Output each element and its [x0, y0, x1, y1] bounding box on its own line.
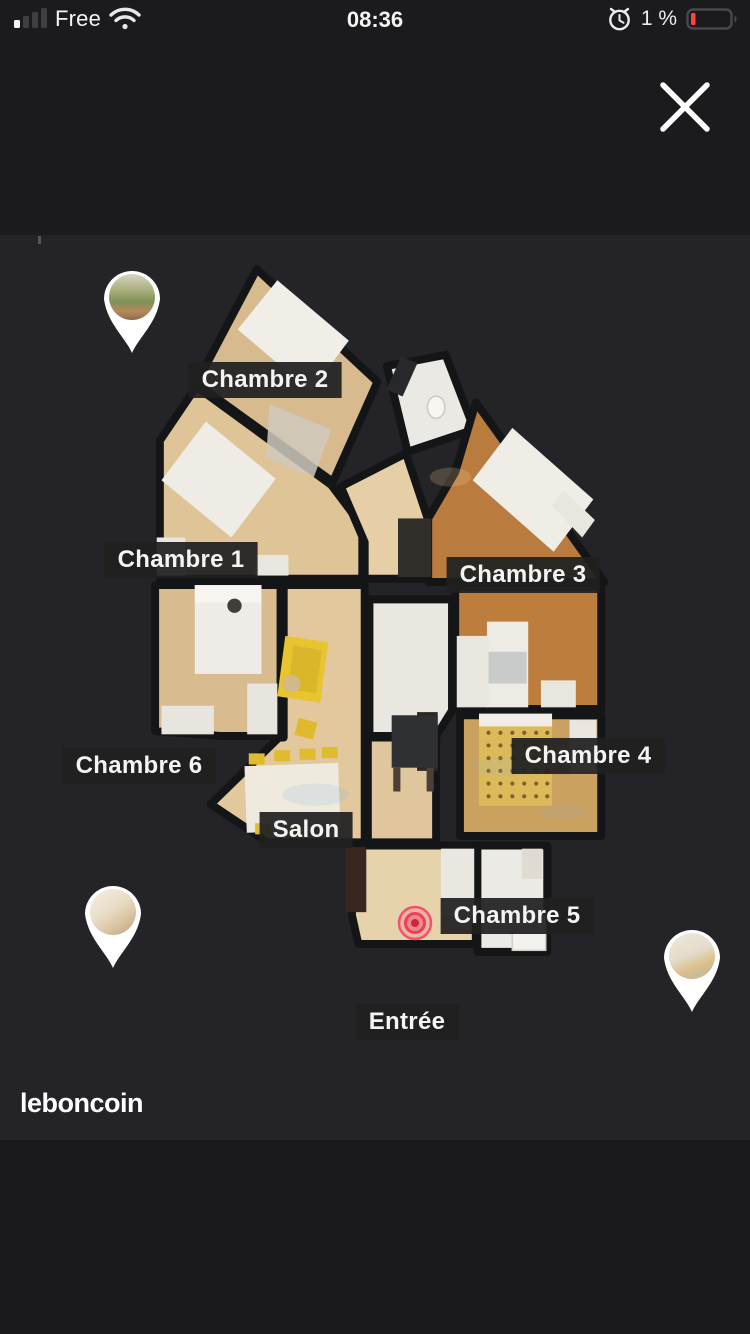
- alarm-icon: [607, 6, 632, 32]
- room-label-chambre-2: Chambre 2: [189, 362, 342, 398]
- phone-screen: Free 08:36 1 %: [0, 0, 750, 1334]
- photo-pin-hallway[interactable]: [77, 878, 149, 972]
- close-button[interactable]: [652, 74, 718, 140]
- room-label-salon: Salon: [260, 812, 353, 848]
- floorplan-viewer[interactable]: Chambre 2 Chambre 1 Chambre 3 Chambre 6 …: [0, 235, 750, 1140]
- brand-logo: leboncoin: [20, 1088, 143, 1119]
- status-bar: Free 08:36 1 %: [0, 0, 750, 44]
- room-label-chambre-1: Chambre 1: [105, 542, 258, 578]
- bottom-spacer: [0, 1140, 750, 1334]
- room-label-chambre-5: Chambre 5: [441, 898, 594, 934]
- photo-pin-bedroom[interactable]: [656, 922, 728, 1016]
- battery-percent-label: 1 %: [641, 7, 677, 31]
- battery-icon: [686, 6, 740, 32]
- room-label-chambre-6: Chambre 6: [63, 748, 216, 784]
- photo-pin-balcony[interactable]: [96, 263, 168, 357]
- close-icon: [652, 74, 718, 140]
- position-marker-icon: [395, 903, 435, 943]
- status-right-cluster: 1 %: [607, 6, 740, 32]
- room-label-chambre-4: Chambre 4: [512, 738, 665, 774]
- room-label-entree: Entrée: [356, 1004, 459, 1040]
- room-label-chambre-3: Chambre 3: [447, 557, 600, 593]
